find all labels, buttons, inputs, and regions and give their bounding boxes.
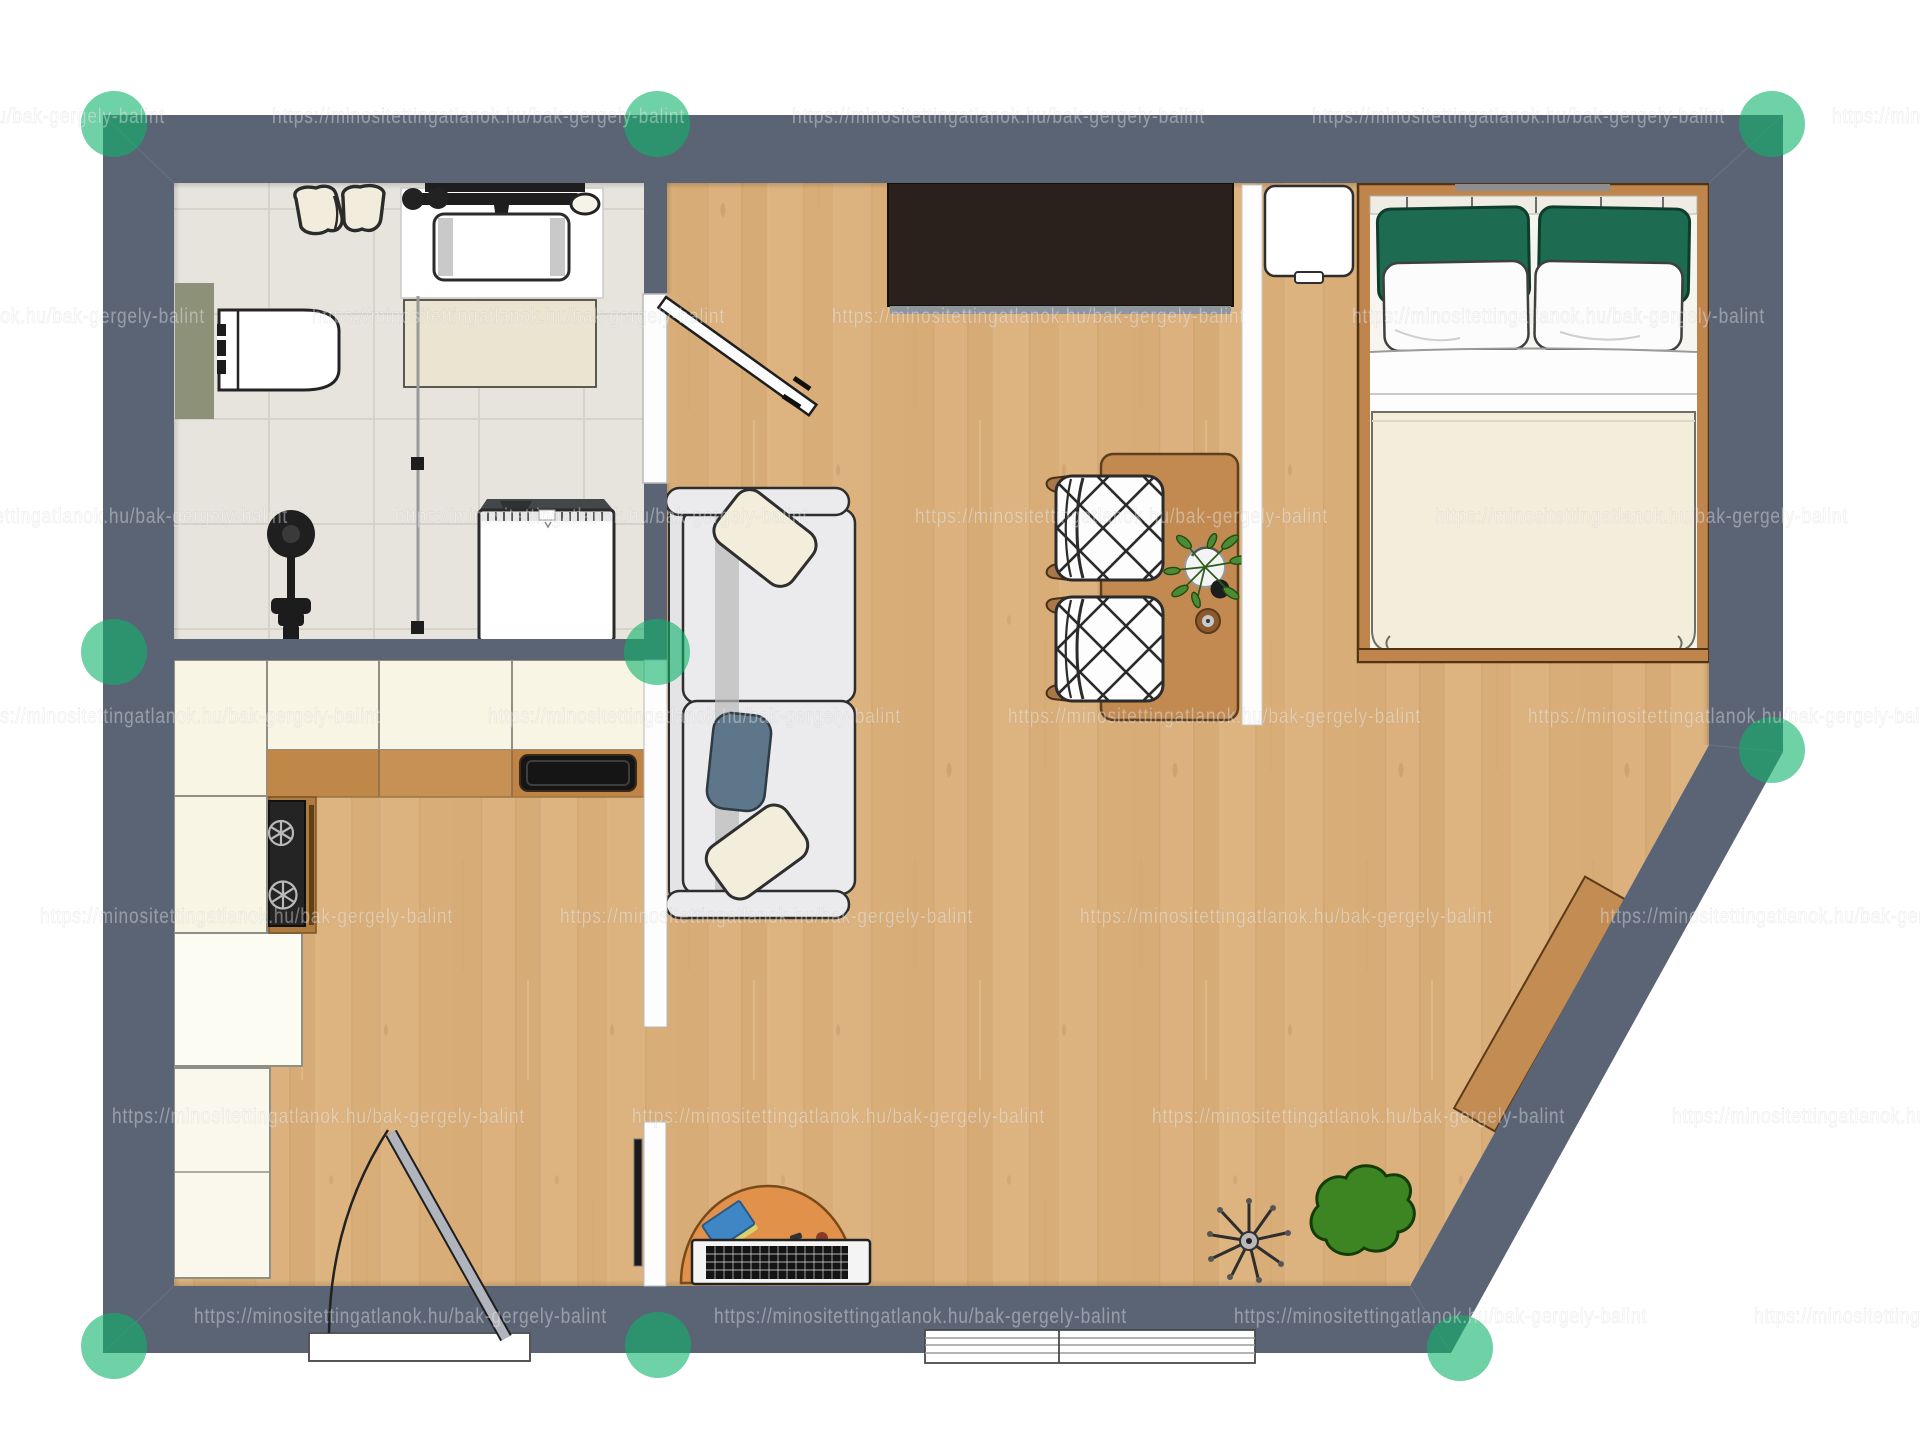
- svg-text:https://minositettingatlanok.h: https://minositettingatlanok.hu/bak-gerg…: [1832, 105, 1920, 128]
- svg-text:https://minositettingatlanok.h: https://minositettingatlanok.hu/bak-gerg…: [0, 105, 165, 128]
- svg-text:https://minositettingatlanok.h: https://minositettingatlanok.hu/bak-gerg…: [1234, 1305, 1647, 1328]
- svg-text:https://minositettingatlanok.h: https://minositettingatlanok.hu/bak-gerg…: [194, 1305, 607, 1328]
- svg-text:https://minositettingatlanok.h: https://minositettingatlanok.hu/bak-gerg…: [1312, 105, 1725, 128]
- svg-text:https://minositettingatlanok.h: https://minositettingatlanok.hu/bak-gerg…: [0, 705, 381, 728]
- svg-text:https://minositettingatlanok.h: https://minositettingatlanok.hu/bak-gerg…: [112, 1105, 525, 1128]
- svg-text:https://minositettingatlanok.h: https://minositettingatlanok.hu/bak-gerg…: [1008, 705, 1421, 728]
- svg-text:https://minositettingatlanok.h: https://minositettingatlanok.hu/bak-gerg…: [395, 505, 808, 528]
- svg-text:https://minositettingatlanok.h: https://minositettingatlanok.hu/bak-gerg…: [1152, 1105, 1565, 1128]
- svg-text:https://minositettingatlanok.h: https://minositettingatlanok.hu/bak-gerg…: [1754, 1305, 1920, 1328]
- svg-text:https://minositettingatlanok.h: https://minositettingatlanok.hu/bak-gerg…: [1435, 505, 1848, 528]
- svg-text:https://minositettingatlanok.h: https://minositettingatlanok.hu/bak-gerg…: [1080, 905, 1493, 928]
- svg-text:https://minositettingatlanok.h: https://minositettingatlanok.hu/bak-gerg…: [1600, 905, 1920, 928]
- svg-text:https://minositettingatlanok.h: https://minositettingatlanok.hu/bak-gerg…: [40, 905, 453, 928]
- svg-text:https://minositettingatlanok.h: https://minositettingatlanok.hu/bak-gerg…: [792, 105, 1205, 128]
- svg-text:https://minositettingatlanok.h: https://minositettingatlanok.hu/bak-gerg…: [1352, 305, 1765, 328]
- svg-text:https://minositettingatlanok.h: https://minositettingatlanok.hu/bak-gerg…: [1528, 705, 1920, 728]
- svg-text:https://minositettingatlanok.h: https://minositettingatlanok.hu/bak-gerg…: [272, 105, 685, 128]
- svg-text:https://minositettingatlanok.h: https://minositettingatlanok.hu/bak-gerg…: [632, 1105, 1045, 1128]
- svg-text:https://minositettingatlanok.h: https://minositettingatlanok.hu/bak-gerg…: [0, 505, 288, 528]
- svg-text:https://minositettingatlanok.h: https://minositettingatlanok.hu/bak-gerg…: [915, 505, 1328, 528]
- svg-text:https://minositettingatlanok.h: https://minositettingatlanok.hu/bak-gerg…: [714, 1305, 1127, 1328]
- svg-text:https://minositettingatlanok.h: https://minositettingatlanok.hu/bak-gerg…: [312, 305, 725, 328]
- svg-text:https://minositettingatlanok.h: https://minositettingatlanok.hu/bak-gerg…: [560, 905, 973, 928]
- svg-text:https://minositettingatlanok.h: https://minositettingatlanok.hu/bak-gerg…: [832, 305, 1245, 328]
- svg-text:https://minositettingatlanok.h: https://minositettingatlanok.hu/bak-gerg…: [0, 305, 205, 328]
- svg-text:https://minositettingatlanok.h: https://minositettingatlanok.hu/bak-gerg…: [488, 705, 901, 728]
- svg-text:https://minositettingatlanok.h: https://minositettingatlanok.hu/bak-gerg…: [1672, 1105, 1920, 1128]
